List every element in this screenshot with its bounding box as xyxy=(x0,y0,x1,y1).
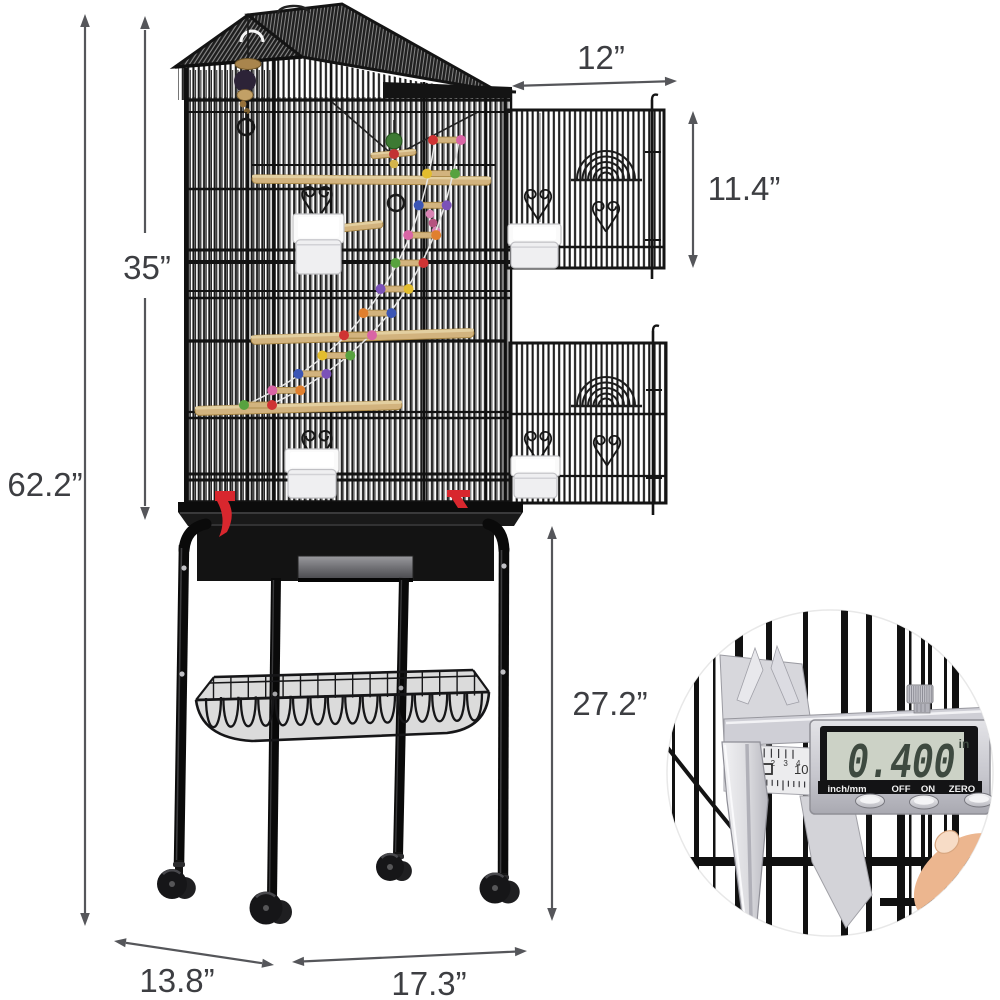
svg-text:17.3”: 17.3” xyxy=(391,965,466,1000)
svg-text:62.2”: 62.2” xyxy=(7,466,82,503)
svg-text:10: 10 xyxy=(794,762,808,777)
svg-text:in: in xyxy=(959,737,970,751)
svg-text:ZERO: ZERO xyxy=(949,784,975,795)
svg-text:13.8”: 13.8” xyxy=(139,962,214,999)
svg-text:12”: 12” xyxy=(577,39,625,76)
svg-text:11.4”: 11.4” xyxy=(708,170,781,207)
svg-text:inch/mm: inch/mm xyxy=(827,784,866,795)
svg-text:27.2”: 27.2” xyxy=(572,685,647,722)
svg-text:OFF: OFF xyxy=(892,784,911,795)
svg-text:ON: ON xyxy=(921,784,935,795)
svg-text:35”: 35” xyxy=(123,249,171,286)
